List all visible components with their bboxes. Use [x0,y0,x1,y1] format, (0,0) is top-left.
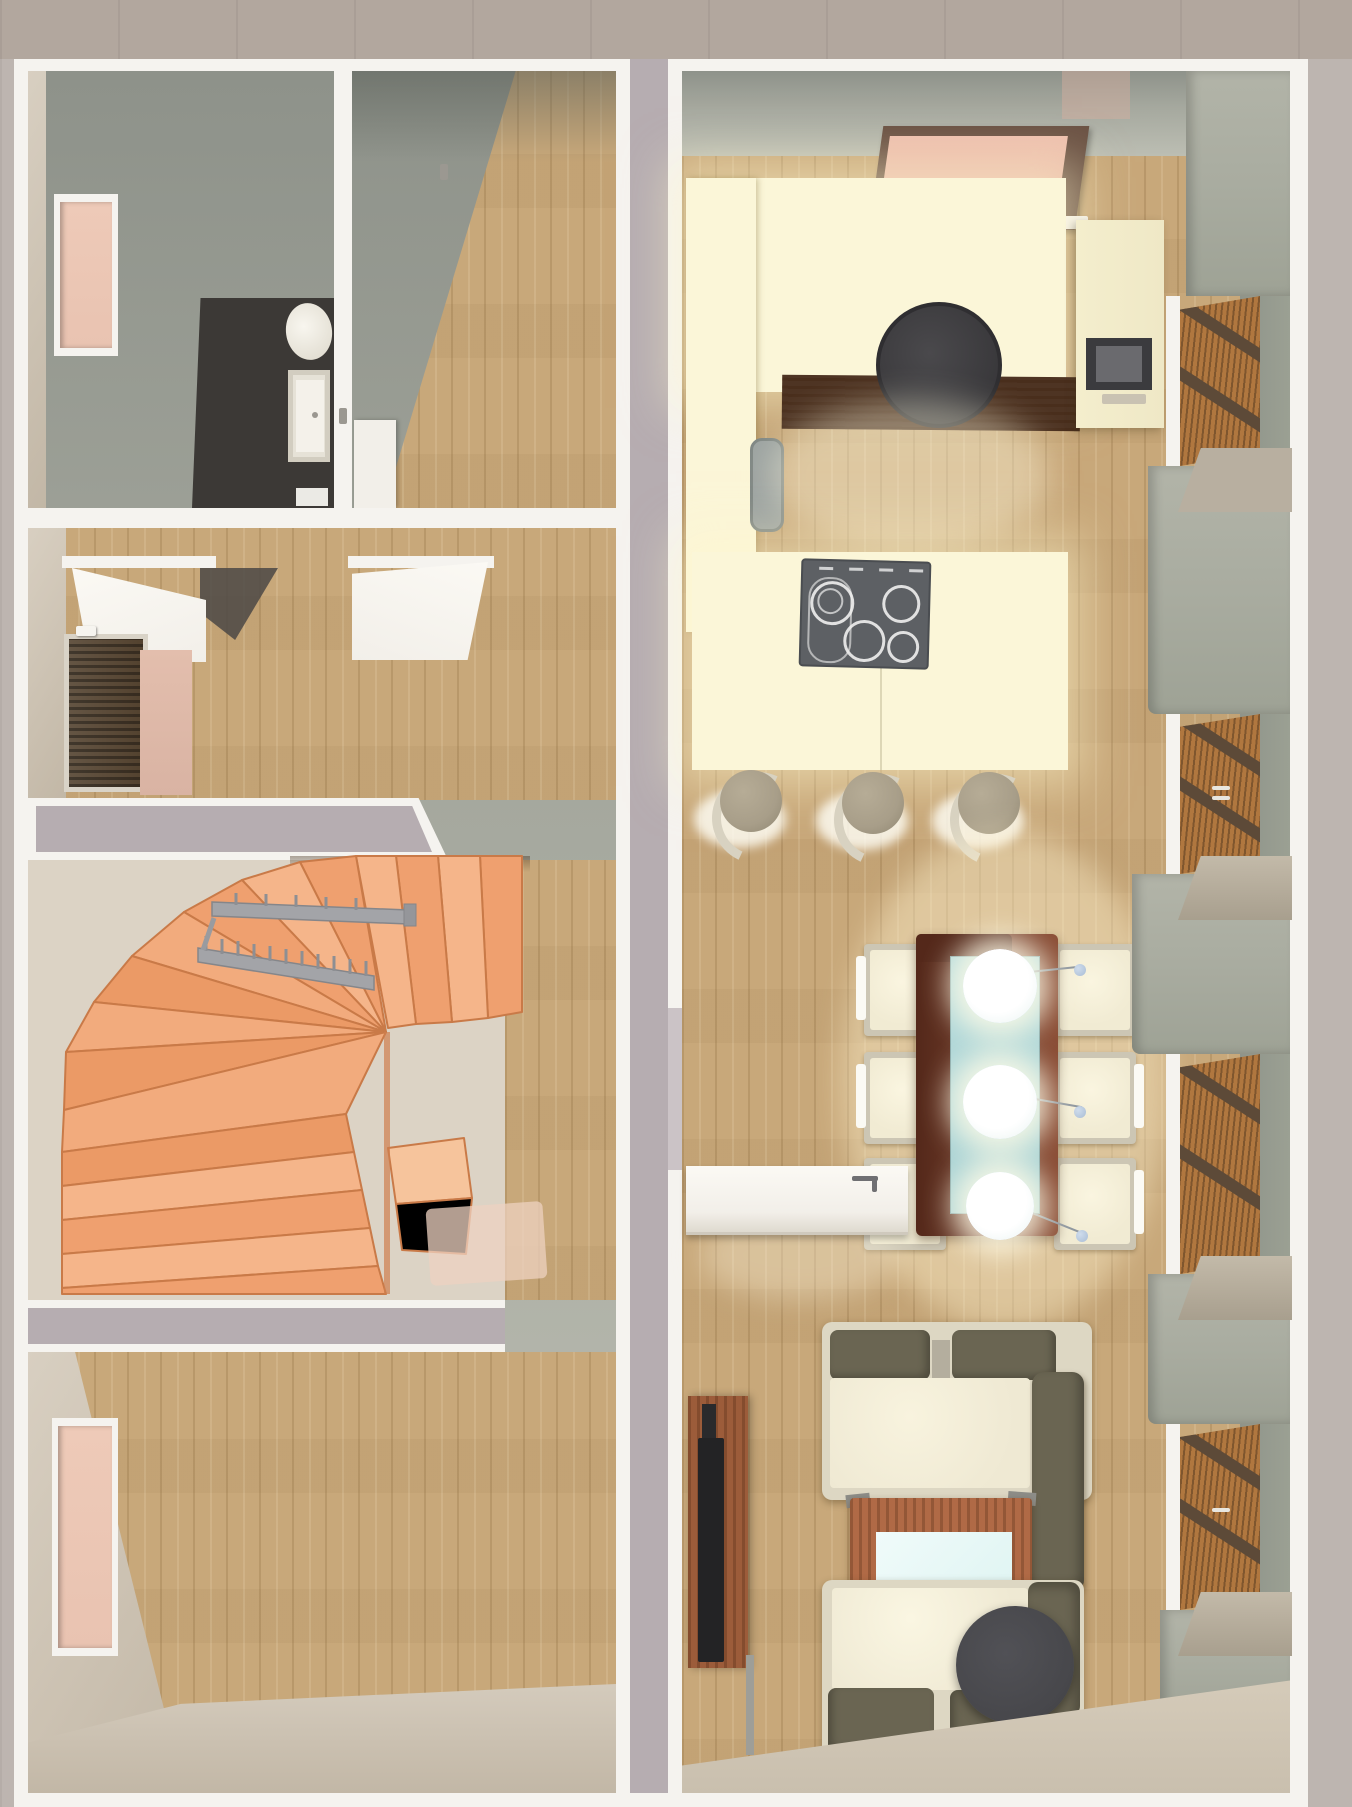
window-jamb [1166,714,1180,874]
bathroom-east-wall [334,71,352,508]
east-wall-pier [1186,71,1290,296]
sofa-chaise [1032,1372,1084,1592]
dining-chair[interactable] [1054,944,1136,1036]
bar-stool[interactable] [694,762,814,872]
floor-pouf[interactable] [956,1606,1074,1724]
cooktop-controls [819,567,833,570]
hall-north-wall [28,508,616,528]
burner-icon [887,631,920,664]
sofa-seat [830,1378,1030,1488]
cooktop-controls [879,568,893,571]
entry-mat [140,650,192,795]
floor-plan-render [0,0,1352,1807]
bottom-window[interactable] [58,1426,112,1648]
stair-landing-wall-top [36,806,432,852]
pendant-light[interactable] [966,1172,1034,1240]
chair-arm [856,1064,866,1128]
bathroom-window[interactable] [60,202,112,348]
window-jamb [1166,296,1180,466]
stair-stringer [384,1032,390,1294]
oven-glass [1096,346,1142,382]
speaker[interactable] [746,1655,754,1755]
cooktop-controls [909,569,923,572]
tv-bracket [702,1404,716,1440]
shuttered-window[interactable] [1180,1424,1260,1610]
chair-arm [856,956,866,1020]
washbasin-bowl [296,380,324,452]
stool-cushion [842,772,904,834]
stool-cushion [958,772,1020,834]
chair-arm [1134,1170,1144,1234]
front-door[interactable] [64,634,148,792]
washbasin-drain [312,412,318,418]
bath-mat[interactable] [296,488,328,506]
vent-grille-icon [1102,394,1146,404]
exterior-top-band [0,0,1352,59]
stool-cushion [720,770,782,832]
exterior-wall-left [14,59,28,1807]
party-wall-east-edge [668,59,682,1807]
pendant-canopy-icon [1074,964,1086,976]
sofa-back-cushion [830,1330,930,1380]
top-room-door[interactable] [354,420,396,508]
party-wall [630,59,668,1807]
north-face-light [1062,71,1130,119]
chair-seat [1060,1164,1130,1244]
stair-exit-light [425,1201,547,1286]
kitchen-floor-pool [770,400,1050,550]
door-handle-icon [339,408,347,424]
dining-chair[interactable] [1054,1158,1136,1250]
pendant-canopy-icon [1076,1230,1088,1242]
top-room-north-shadow [352,71,616,161]
dining-chair[interactable] [1054,1052,1136,1144]
chair-seat [1060,950,1130,1030]
stair-step [388,1138,472,1204]
door-lintel [62,556,216,568]
shuttered-window[interactable] [1180,714,1260,874]
chair-arm [1134,1064,1144,1128]
tv[interactable] [698,1438,724,1662]
pendant-light[interactable] [963,949,1037,1023]
party-wall-door-opening [668,1008,682,1170]
bathroom-west-face [28,71,46,508]
door-handle-icon [440,164,448,180]
pendant-canopy-icon [1074,1106,1086,1118]
window-jamb [1166,1054,1180,1274]
window-handle-icon [1212,1508,1230,1512]
cooktop[interactable] [799,558,932,669]
exterior-wall-right [1290,59,1308,1807]
window-handle-icon [1212,786,1230,790]
open-door-leaf[interactable] [352,562,488,660]
sofa-gap [932,1340,950,1378]
bar-stool[interactable] [816,764,936,874]
pendant-light[interactable] [963,1065,1037,1139]
window-handle-icon [1212,796,1230,800]
cooktop-controls [849,568,863,571]
hall-west-face [28,528,66,800]
shuttered-window[interactable] [1180,1054,1260,1274]
party-wall-west-edge [616,59,630,1807]
stairwell-south-wall-top [28,1308,505,1344]
shuttered-window[interactable] [1180,296,1260,466]
burner-zone-icon [807,577,853,664]
door-handle-icon [76,626,96,636]
burner-icon [882,584,921,623]
exterior-wall-bottom [14,1793,1308,1807]
chair-seat [1060,1058,1130,1138]
window-jamb [1166,1424,1180,1610]
door-handle-icon [872,1176,877,1192]
